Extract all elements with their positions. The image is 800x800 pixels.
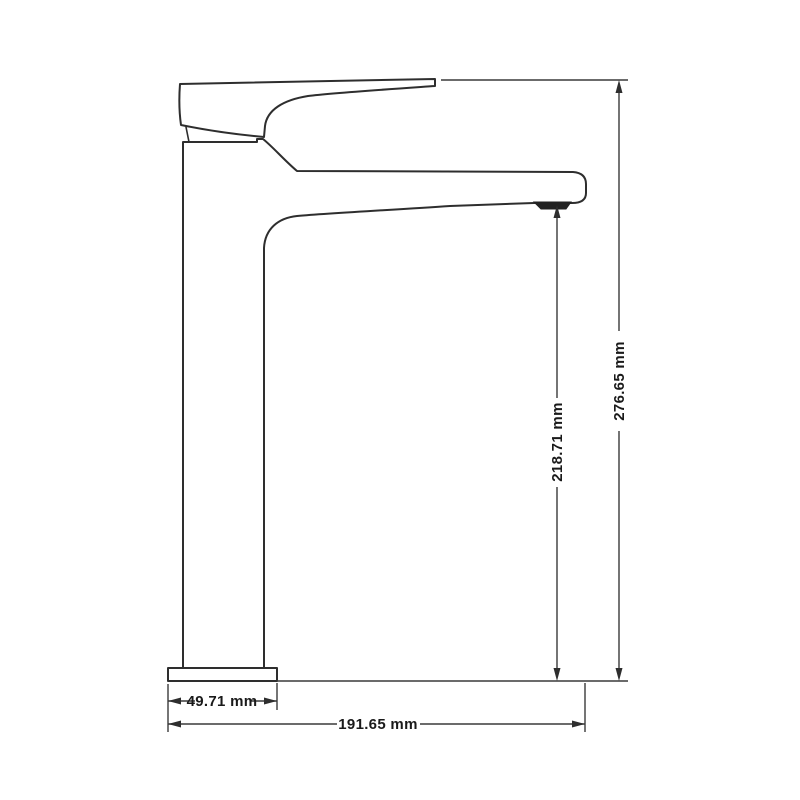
dimension-label-spout-reach: 191.65 mm bbox=[338, 716, 417, 733]
arrowhead-down bbox=[554, 668, 561, 681]
faucet-handle bbox=[179, 79, 435, 137]
faucet-dimension-drawing: 276.65 mm 218.71 mm 49.71 mm 191.65 mm bbox=[0, 0, 800, 800]
arrowhead-left bbox=[168, 721, 181, 728]
arrowhead-down bbox=[616, 668, 623, 681]
dimension-label-outlet-height: 218.71 mm bbox=[549, 402, 566, 481]
arrowhead-up bbox=[616, 80, 623, 93]
base-plate bbox=[168, 668, 277, 681]
dimension-base-width: 49.71 mm bbox=[168, 693, 277, 710]
arrowhead-right bbox=[264, 698, 277, 705]
aerator bbox=[534, 202, 571, 209]
technical-drawing-canvas: 276.65 mm 218.71 mm 49.71 mm 191.65 mm bbox=[0, 0, 800, 800]
arrowhead-right bbox=[572, 721, 585, 728]
handle-joint-edge bbox=[186, 127, 189, 142]
dimension-label-base-width: 49.71 mm bbox=[187, 693, 258, 710]
dimension-spout-reach: 191.65 mm bbox=[168, 716, 585, 733]
dimension-outlet-height: 218.71 mm bbox=[549, 205, 566, 681]
faucet-outline bbox=[168, 79, 586, 681]
dimension-label-overall-height: 276.65 mm bbox=[611, 341, 628, 420]
arrowhead-left bbox=[168, 698, 181, 705]
dimension-overall-height: 276.65 mm bbox=[611, 80, 628, 681]
faucet-body-and-spout bbox=[183, 139, 586, 668]
